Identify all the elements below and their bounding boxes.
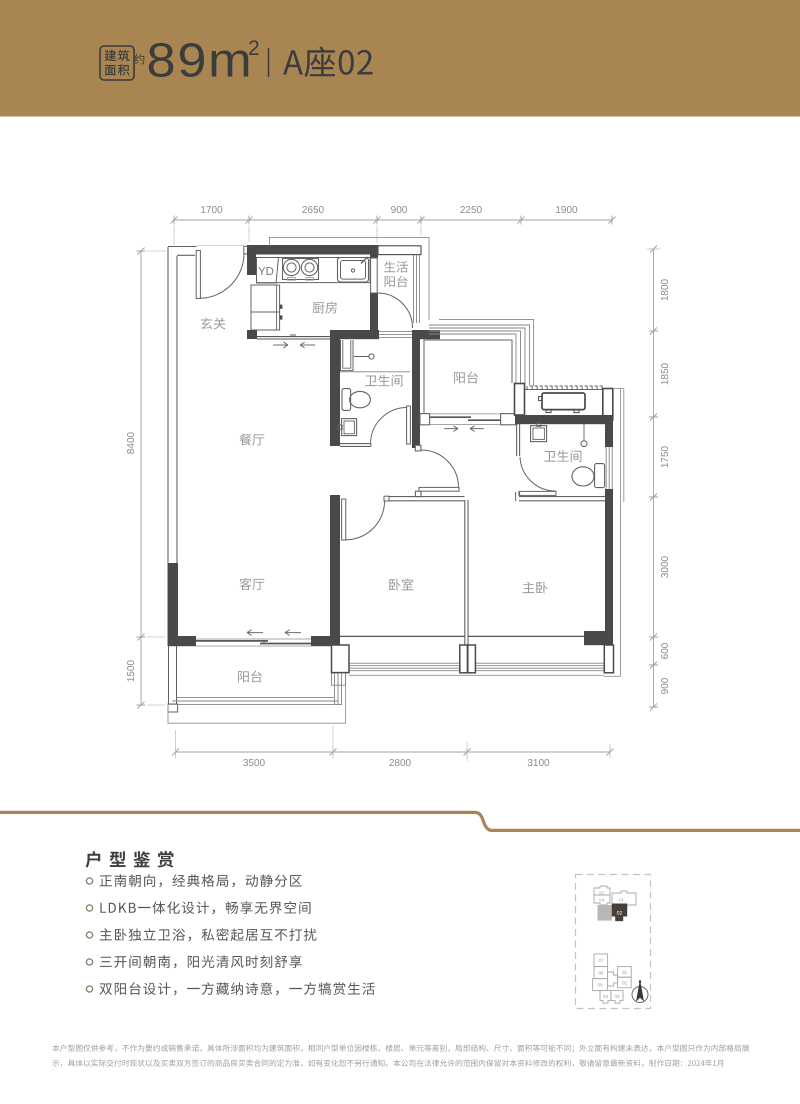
svg-text:1700: 1700 [200, 205, 223, 216]
svg-text:03: 03 [614, 994, 620, 999]
svg-text:02: 02 [622, 980, 628, 985]
svg-text:2800: 2800 [389, 758, 412, 769]
svg-text:1750: 1750 [660, 445, 671, 468]
svg-text:1500: 1500 [126, 659, 137, 682]
svg-text:3000: 3000 [660, 555, 671, 578]
svg-text:YD: YD [258, 266, 274, 278]
svg-text:2650: 2650 [302, 205, 325, 216]
svg-text:89m: 89m [147, 33, 254, 87]
svg-text:06: 06 [598, 971, 604, 976]
svg-text:2: 2 [248, 37, 260, 60]
svg-text:3500: 3500 [243, 758, 266, 769]
svg-text:01: 01 [622, 970, 628, 975]
svg-text:1900: 1900 [555, 205, 578, 216]
svg-text:900: 900 [660, 677, 671, 694]
svg-text:05: 05 [599, 891, 604, 896]
svg-text:07: 07 [598, 958, 604, 963]
svg-text:01: 01 [619, 898, 624, 903]
svg-text:04: 04 [599, 898, 604, 903]
svg-text:1850: 1850 [660, 362, 671, 385]
svg-text:04: 04 [603, 994, 609, 999]
svg-text:8400: 8400 [126, 431, 137, 454]
svg-text:05: 05 [597, 983, 603, 988]
svg-text:900: 900 [391, 205, 408, 216]
svg-text:02: 02 [617, 911, 623, 917]
svg-text:2250: 2250 [460, 205, 483, 216]
svg-text:1800: 1800 [660, 278, 671, 301]
svg-text:600: 600 [660, 642, 671, 659]
svg-text:3100: 3100 [527, 758, 550, 769]
